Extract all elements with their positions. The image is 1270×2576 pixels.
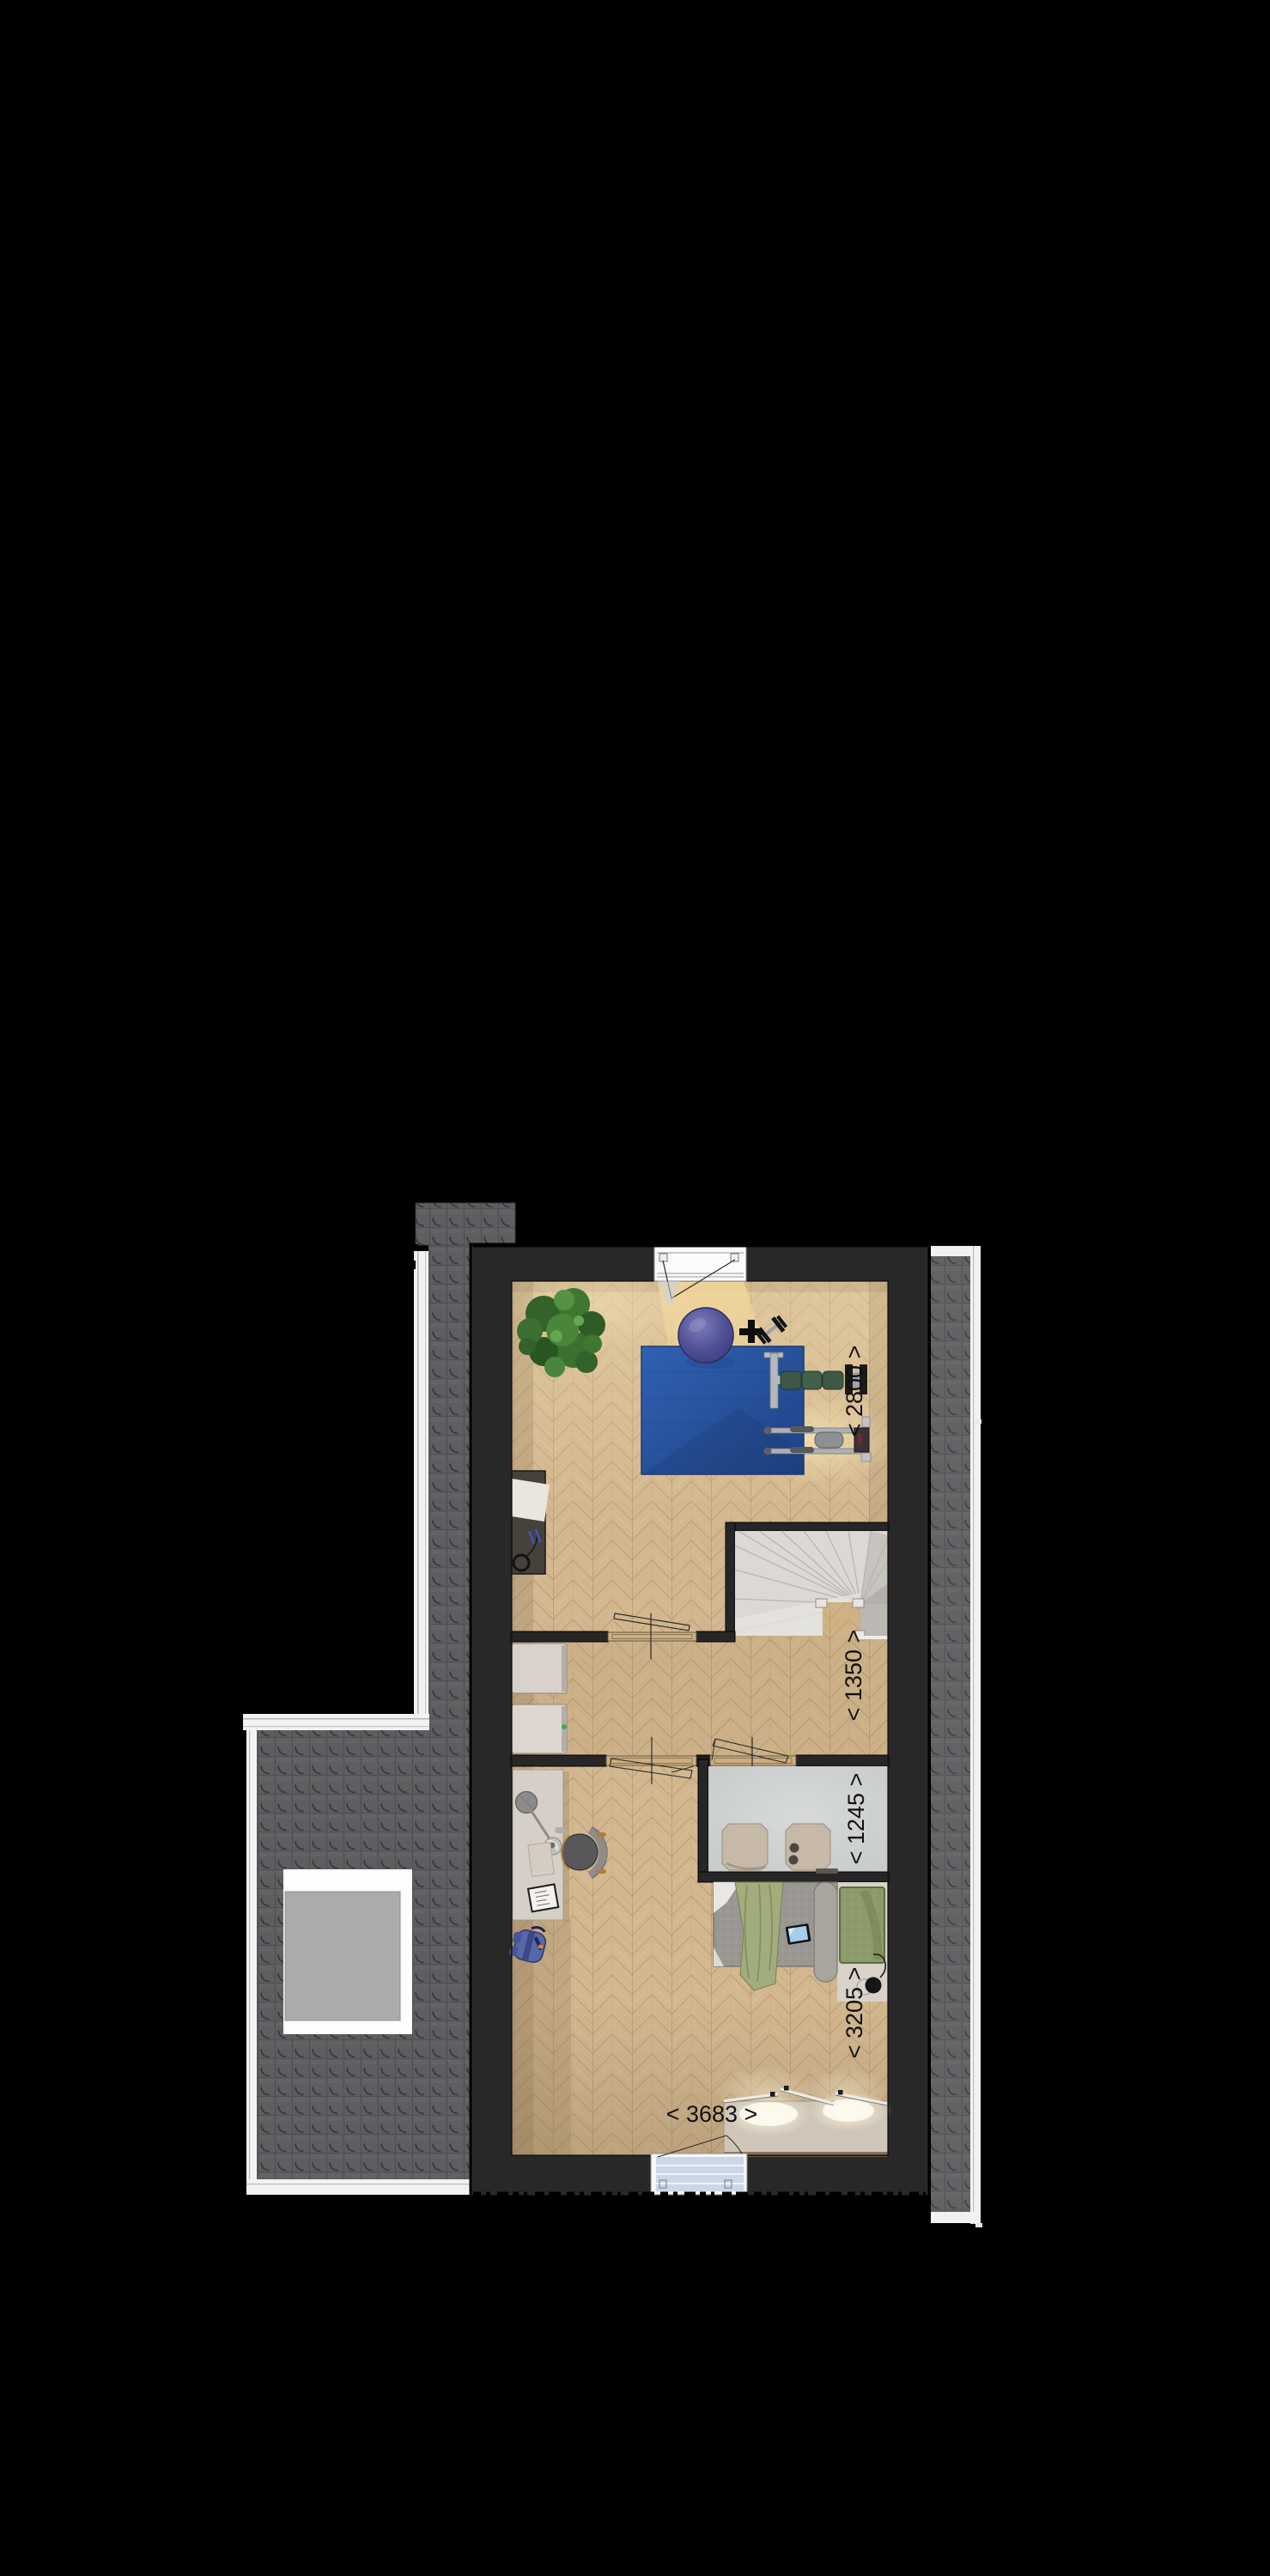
- svg-text:< 3205 >: < 3205 >: [842, 1967, 867, 2059]
- svg-text:< 1245 >: < 1245 >: [843, 1773, 869, 1865]
- svg-text:< 2800 >: < 2800 >: [842, 1346, 867, 1437]
- svg-text:< 1350 >: < 1350 >: [841, 1630, 866, 1722]
- svg-text:< 3683 >: < 3683 >: [666, 2101, 758, 2127]
